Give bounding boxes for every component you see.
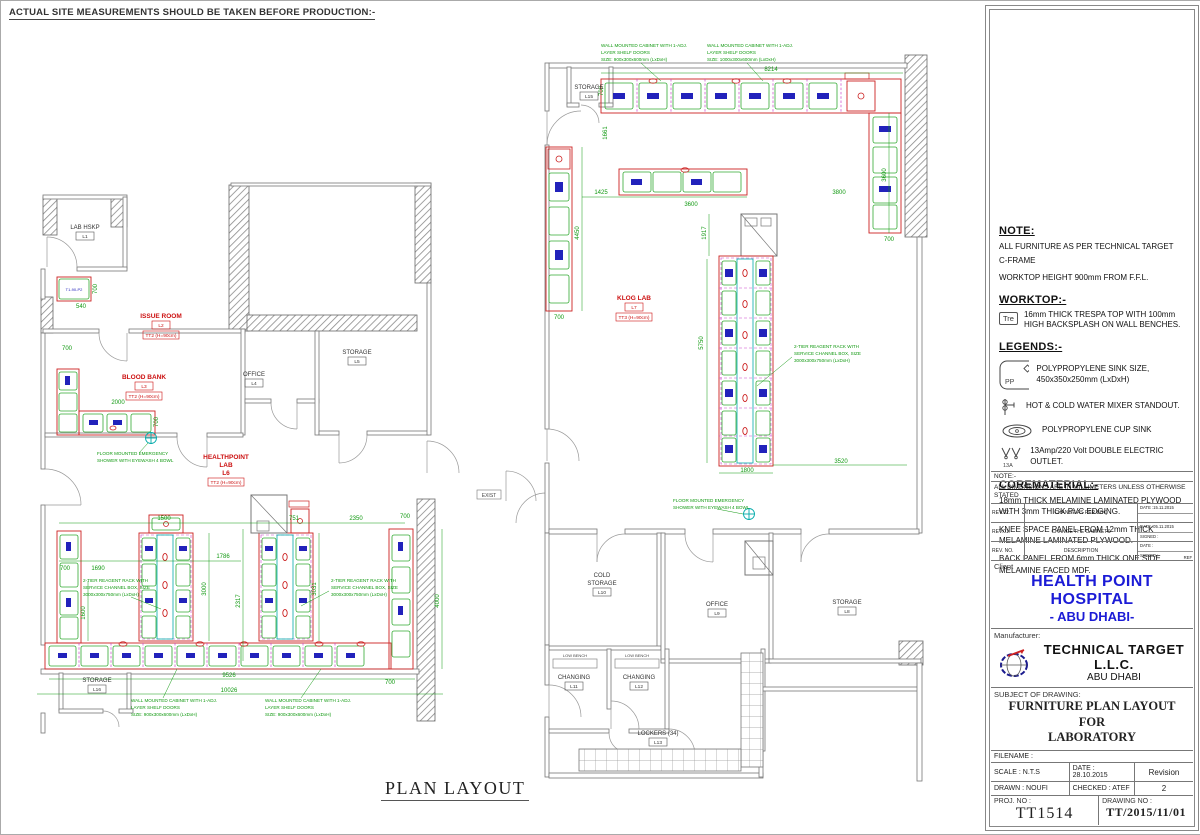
svg-text:OFFICE: OFFICE xyxy=(706,602,728,608)
svg-text:CHANGING: CHANGING xyxy=(623,675,656,681)
cup-sink-icon xyxy=(999,423,1035,439)
svg-text:TT2 (H=90cm): TT2 (H=90cm) xyxy=(128,394,159,400)
revision-no: REV.02. xyxy=(991,504,1025,522)
svg-text:L9: L9 xyxy=(714,611,720,617)
svg-text:540: 540 xyxy=(76,304,87,310)
svg-text:700: 700 xyxy=(554,315,565,321)
svg-text:FLOOR MOUNTED EMERGENCY: FLOOR MOUNTED EMERGENCY xyxy=(673,498,744,503)
revision-row: REV. NO. DESCRIPTION DATE : SIGNED : xyxy=(991,542,1193,560)
drawing-no-label: DRAWING NO : xyxy=(1102,798,1190,805)
svg-text:1425: 1425 xyxy=(594,190,608,196)
svg-text:3000x300x750mm (LxDxH): 3000x300x750mm (LxDxH) xyxy=(331,592,387,597)
svg-text:STORAGE: STORAGE xyxy=(574,85,603,91)
right-plan-walls xyxy=(899,55,927,665)
svg-text:EXIST: EXIST xyxy=(482,493,496,499)
svg-text:LOW BENCH: LOW BENCH xyxy=(625,653,649,658)
revision-date: DATE :05.11.2015 xyxy=(1138,523,1193,533)
svg-text:ISSUE ROOM: ISSUE ROOM xyxy=(140,313,182,320)
revision-date: DATE :15.11.2015 xyxy=(1138,504,1193,514)
exist-label: EXIST xyxy=(477,490,501,499)
scale-value: SCALE : N.T.S xyxy=(991,763,1070,781)
date-value: DATE : 28.10.2015 xyxy=(1070,763,1135,781)
drawing-no-value: TT/2015/11/01 xyxy=(1102,805,1190,820)
emergency-shower-symbol-left xyxy=(146,433,157,444)
svg-text:L12: L12 xyxy=(635,684,643,690)
note-heading: NOTE: xyxy=(999,225,1187,237)
svg-text:2-TIER REAGENT RACK WITH: 2-TIER REAGENT RACK WITH xyxy=(794,344,859,349)
revision-no: REV.01. xyxy=(991,523,1025,541)
revision-signed: SIGNED : xyxy=(1138,533,1193,542)
manufacturer-name: TECHNICAL TARGET L.L.C. xyxy=(1038,642,1190,672)
svg-text:TT2 (H=90cm): TT2 (H=90cm) xyxy=(210,480,241,486)
svg-text:CHANGING: CHANGING xyxy=(558,675,591,681)
svg-text:9526: 9526 xyxy=(222,673,236,679)
svg-text:13A: 13A xyxy=(1003,463,1013,469)
pp-sink-icon: PP xyxy=(999,359,1029,391)
revision-no: REV. NO. xyxy=(991,542,1025,560)
left-plan: T1-90-P2 xyxy=(37,183,546,733)
svg-text:L11: L11 xyxy=(570,684,578,690)
proj-no-value: TT1514 xyxy=(994,805,1095,823)
revision-row: REV.01. CHANGE THE CABINETS DATE :05.11.… xyxy=(991,523,1193,542)
worktop-text: 16mm THICK TRESPA TOP WITH 100mm HIGH BA… xyxy=(1024,310,1187,331)
title-block-panel: NOTE: ALL FURNITURE AS PER TECHNICAL TAR… xyxy=(985,5,1199,831)
svg-text:2000: 2000 xyxy=(111,400,125,406)
svg-text:L3: L3 xyxy=(141,384,147,390)
island-shaft xyxy=(741,214,777,256)
right-plan: WALL MOUNTED CABINET WITH 1-ADJ. LAYER S… xyxy=(545,43,927,781)
revision-date: DATE : xyxy=(1138,542,1193,552)
svg-text:L8: L8 xyxy=(844,609,850,615)
svg-text:2-TIER REAGENT RACK WITH: 2-TIER REAGENT RACK WITH xyxy=(331,578,396,583)
legend-item-outlet: 13A 13Amp/220 Volt DOUBLE ELECTRIC OUTLE… xyxy=(999,445,1187,469)
svg-text:3800: 3800 xyxy=(832,190,846,196)
manufacturer-box: Manufacturer: TECHNICAL TARGET L.L.C. AB… xyxy=(991,628,1193,687)
revision-desc: DESCRIPTION xyxy=(1025,542,1137,560)
svg-text:L5: L5 xyxy=(354,359,360,365)
svg-text:L7: L7 xyxy=(631,305,637,311)
revision-desc: CHANGE THE CABINETS xyxy=(1025,523,1137,541)
svg-text:3031: 3031 xyxy=(312,582,318,596)
svg-text:LAB HSKP: LAB HSKP xyxy=(70,225,99,231)
drawn-value: DRAWN : NOUFI xyxy=(991,782,1070,795)
svg-text:WALL MOUNTED CABINET WITH 1-AD: WALL MOUNTED CABINET WITH 1-ADJ. xyxy=(265,698,351,703)
legend-sink-label: POLYPROPYLENE SINK SIZE, 450x350x250mm (… xyxy=(1036,364,1187,385)
svg-text:3000: 3000 xyxy=(202,582,208,596)
title-block-inner-border: NOTE: ALL FURNITURE AS PER TECHNICAL TAR… xyxy=(989,9,1195,827)
svg-text:SHOWER WITH EYEWASH 4 BOWL: SHOWER WITH EYEWASH 4 BOWL xyxy=(673,505,750,510)
ref-label: REF xyxy=(1184,555,1192,560)
svg-text:STORAGE: STORAGE xyxy=(832,600,861,606)
worktop-item: Tre 16mm THICK TRESPA TOP WITH 100mm HIG… xyxy=(999,310,1187,331)
svg-text:1661: 1661 xyxy=(603,126,609,140)
svg-text:LAYER SHELF DOORS: LAYER SHELF DOORS xyxy=(131,705,180,710)
note2-label: NOTE:- xyxy=(991,472,1193,482)
svg-text:700: 700 xyxy=(154,416,160,427)
svg-text:L16: L16 xyxy=(93,687,101,693)
filename-label: FILENAME : xyxy=(991,751,1193,762)
right-plan-partitions xyxy=(545,63,922,781)
svg-text:700: 700 xyxy=(385,680,396,686)
svg-text:KLOG LAB: KLOG LAB xyxy=(617,295,651,302)
note-line: WORKTOP HEIGHT 900mm FROM F.F.L. xyxy=(999,272,1187,284)
svg-text:LAYER SHELF DOORS: LAYER SHELF DOORS xyxy=(265,705,314,710)
proj-no-label: PROJ. NO : xyxy=(994,798,1095,805)
svg-text:WALL MOUNTED CABINET WITH 1-AD: WALL MOUNTED CABINET WITH 1-ADJ. xyxy=(707,43,793,48)
svg-text:STORAGE: STORAGE xyxy=(587,581,616,587)
client-city: - ABU DHABI- xyxy=(994,609,1190,624)
manufacturer-city: ABU DHABI xyxy=(1038,672,1190,683)
trespa-icon: Tre xyxy=(999,312,1018,325)
revision-signed xyxy=(1138,514,1193,523)
client-box: Client HEALTH POINT HOSPITAL - ABU DHABI… xyxy=(991,560,1193,628)
svg-text:TT2 (H=90cm): TT2 (H=90cm) xyxy=(145,333,176,339)
subject-label: SUBJECT OF DRAWING: xyxy=(994,690,1190,699)
project-row: PROJ. NO : TT1514 DRAWING NO : TT/2015/1… xyxy=(991,795,1193,825)
legend-mixer-label: HOT & COLD WATER MIXER STANDOUT. xyxy=(1026,401,1180,411)
island-bench-2 xyxy=(251,495,313,641)
svg-text:SERVICE CHANNEL BOX, SIZE: SERVICE CHANNEL BOX, SIZE xyxy=(331,585,398,590)
revision-value: 2 xyxy=(1135,782,1193,795)
right-plan-dimensions: 8214 700 1661 1425 3600 3800 4450 700 19… xyxy=(554,67,895,474)
right-plan-benches xyxy=(546,73,901,771)
svg-text:STORAGE: STORAGE xyxy=(82,678,111,684)
drawing-no-cell: DRAWING NO : TT/2015/11/01 xyxy=(1099,796,1193,825)
subject-line2: LABORATORY xyxy=(994,730,1190,746)
mixer-icon xyxy=(999,397,1019,417)
svg-text:700: 700 xyxy=(60,566,71,572)
svg-text:L4: L4 xyxy=(251,381,257,387)
dimension-note-box: NOTE:- ALL DIMENSIONS ARE IN MILLIMETERS… xyxy=(991,471,1193,504)
svg-text:TT3 (H=90cm): TT3 (H=90cm) xyxy=(618,315,649,321)
svg-text:1690: 1690 xyxy=(91,566,105,572)
svg-text:SIZE: 1000x300x600mm (LxDxH): SIZE: 1000x300x600mm (LxDxH) xyxy=(707,57,776,62)
svg-text:3600: 3600 xyxy=(684,202,698,208)
svg-text:700: 700 xyxy=(400,514,411,520)
svg-text:PP: PP xyxy=(1005,379,1015,386)
subject-line1: FURNITURE PLAN LAYOUT FOR xyxy=(994,699,1190,730)
svg-text:BLOOD BANK: BLOOD BANK xyxy=(122,374,166,381)
company-logo xyxy=(994,645,1034,681)
legends-heading: LEGENDS:- xyxy=(999,341,1187,353)
svg-text:LOCKERS (34): LOCKERS (34) xyxy=(637,731,678,737)
svg-text:FLOOR MOUNTED EMERGENCY: FLOOR MOUNTED EMERGENCY xyxy=(97,451,168,456)
legend-cupsink-label: POLYPROPYLENE CUP SINK xyxy=(1042,425,1152,435)
svg-text:700: 700 xyxy=(93,283,99,294)
svg-text:3000x300x750mm (LxDxH): 3000x300x750mm (LxDxH) xyxy=(83,592,139,597)
plan-title: PLAN LAYOUT xyxy=(381,778,529,801)
svg-text:L6: L6 xyxy=(222,470,230,477)
svg-text:SERVICE CHANNEL BOX, SIZE: SERVICE CHANNEL BOX, SIZE xyxy=(794,351,861,356)
svg-text:2317: 2317 xyxy=(236,594,242,608)
drawing-sheet: ACTUAL SITE MEASUREMENTS SHOULD BE TAKEN… xyxy=(0,0,1200,835)
legend-item-mixer: HOT & COLD WATER MIXER STANDOUT. xyxy=(999,397,1187,417)
svg-text:SIZE: 900x300x600mm (LxDxH): SIZE: 900x300x600mm (LxDxH) xyxy=(131,712,198,717)
svg-text:1600: 1600 xyxy=(81,606,87,620)
svg-text:LAB: LAB xyxy=(219,462,233,469)
svg-text:WALL MOUNTED CABINET WITH 1-AD: WALL MOUNTED CABINET WITH 1-ADJ. xyxy=(131,698,217,703)
client-name: HEALTH POINT HOSPITAL xyxy=(994,573,1190,609)
client-label: Client xyxy=(994,562,1190,571)
checked-value: CHECKED : ATEF xyxy=(1070,782,1135,795)
svg-text:L1: L1 xyxy=(82,234,88,240)
svg-text:SIZE: 900x300x600mm (LxDxH): SIZE: 900x300x600mm (LxDxH) xyxy=(265,712,332,717)
svg-text:3000x300x750mm (LxDxH): 3000x300x750mm (LxDxH) xyxy=(794,358,850,363)
svg-text:3520: 3520 xyxy=(834,459,848,465)
svg-text:SIZE: 900x300x600mm (LxDxH): SIZE: 900x300x600mm (LxDxH) xyxy=(601,57,668,62)
subject-box: SUBJECT OF DRAWING: FURNITURE PLAN LAYOU… xyxy=(991,687,1193,750)
svg-text:OFFICE: OFFICE xyxy=(243,372,265,378)
svg-text:8214: 8214 xyxy=(764,67,778,73)
svg-text:700: 700 xyxy=(884,237,895,243)
svg-text:WALL MOUNTED CABINET WITH 1-AD: WALL MOUNTED CABINET WITH 1-ADJ. xyxy=(601,43,687,48)
drawn-row: DRAWN : NOUFI CHECKED : ATEF 2 xyxy=(991,781,1193,795)
cabinet-code-label: T1-90-P2 xyxy=(66,287,83,292)
svg-text:LOW BENCH: LOW BENCH xyxy=(563,653,587,658)
scale-row: SCALE : N.T.S DATE : 28.10.2015 Revision xyxy=(991,762,1193,781)
svg-text:4450: 4450 xyxy=(575,226,581,240)
floor-plan-drawing: T1-90-P2 xyxy=(1,1,981,834)
svg-text:LAYER SHELF DOORS: LAYER SHELF DOORS xyxy=(707,50,756,55)
filename-row: FILENAME : xyxy=(991,750,1193,762)
manufacturer-label: Manufacturer: xyxy=(994,631,1190,640)
svg-text:700: 700 xyxy=(62,346,73,352)
svg-text:L13: L13 xyxy=(654,740,662,746)
revision-row: REV.02. CHANGE AS PER BOQ DATE :15.11.20… xyxy=(991,504,1193,523)
svg-text:2350: 2350 xyxy=(349,516,363,522)
emergency-shower-symbol-right xyxy=(744,509,755,520)
svg-text:2-TIER REAGENT RACK WITH: 2-TIER REAGENT RACK WITH xyxy=(83,578,148,583)
legend-outlet-label: 13Amp/220 Volt DOUBLE ELECTRIC OUTLET. xyxy=(1030,446,1187,467)
svg-text:751: 751 xyxy=(289,516,300,522)
svg-text:SHOWER WITH EYEWASH 4 BOWL: SHOWER WITH EYEWASH 4 BOWL xyxy=(97,458,174,463)
svg-text:COLD: COLD xyxy=(594,573,611,579)
svg-text:L2: L2 xyxy=(158,323,164,329)
note-line: C-FRAME xyxy=(999,255,1187,267)
svg-text:3600: 3600 xyxy=(882,168,888,182)
worktop-heading: WORKTOP:- xyxy=(999,294,1187,306)
left-plan-doors xyxy=(45,237,546,727)
revision-desc: CHANGE AS PER BOQ xyxy=(1025,504,1137,522)
svg-text:HEALTHPOINT: HEALTHPOINT xyxy=(203,454,249,461)
note2-text: ALL DIMENSIONS ARE IN MILLIMETERS UNLESS… xyxy=(991,482,1193,504)
svg-text:1500: 1500 xyxy=(157,516,171,522)
revision-header: Revision xyxy=(1135,763,1193,781)
note-line: ALL FURNITURE AS PER TECHNICAL TARGET xyxy=(999,241,1187,253)
svg-text:1917: 1917 xyxy=(702,226,708,240)
svg-text:1800: 1800 xyxy=(740,468,754,474)
legend-item-cupsink: POLYPROPYLENE CUP SINK xyxy=(999,423,1187,439)
svg-text:4000: 4000 xyxy=(435,594,441,608)
svg-text:L15: L15 xyxy=(585,94,593,100)
svg-text:L10: L10 xyxy=(598,590,606,596)
right-plan-dim-lines xyxy=(582,73,907,473)
legend-item-sink: PP POLYPROPYLENE SINK SIZE, 450x350x250m… xyxy=(999,359,1187,391)
electric-outlet-icon: 13A xyxy=(999,445,1023,469)
svg-text:10026: 10026 xyxy=(221,688,238,694)
revision-table: REV.02. CHANGE AS PER BOQ DATE :15.11.20… xyxy=(991,503,1193,560)
svg-text:STORAGE: STORAGE xyxy=(342,350,371,356)
title-block: NOTE:- ALL DIMENSIONS ARE IN MILLIMETERS… xyxy=(991,471,1193,825)
svg-text:LAYER SHELF DOORS: LAYER SHELF DOORS xyxy=(601,50,650,55)
left-plan-dimensions: 540 700 700 2000 700 1500 751 2350 700 1… xyxy=(60,283,441,694)
svg-text:5750: 5750 xyxy=(699,336,705,350)
island-bench-right xyxy=(719,256,773,466)
svg-text:SERVICE CHANNEL BOX, SIZE: SERVICE CHANNEL BOX, SIZE xyxy=(83,585,150,590)
svg-text:1786: 1786 xyxy=(216,554,230,560)
project-cell: PROJ. NO : TT1514 xyxy=(991,796,1099,825)
